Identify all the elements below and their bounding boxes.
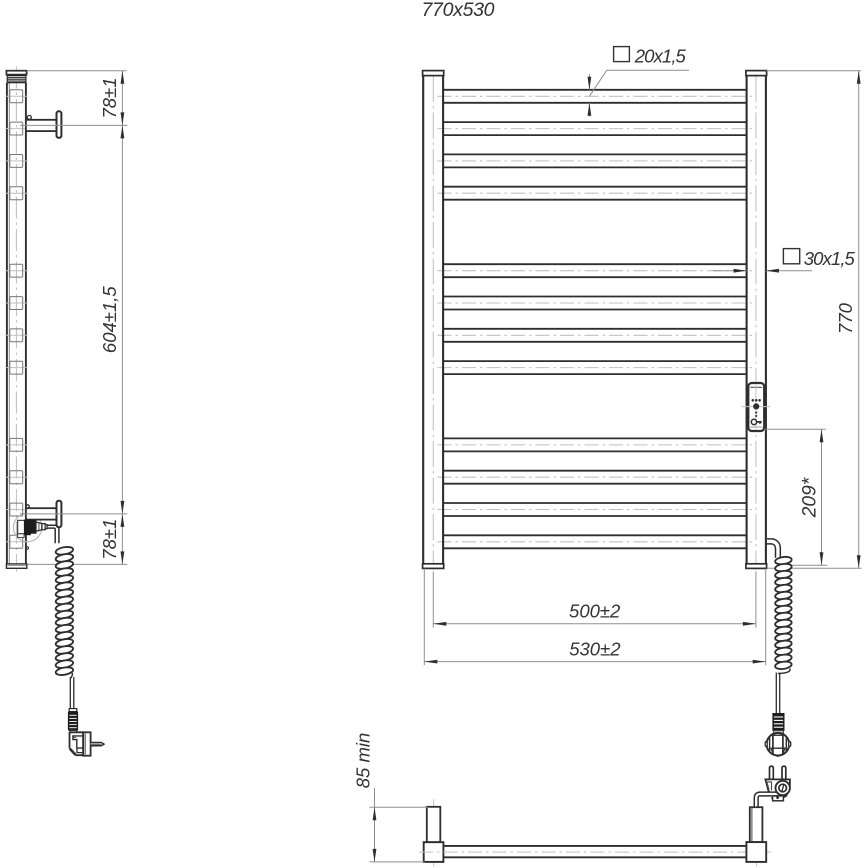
svg-text:604±1,5: 604±1,5	[99, 286, 120, 353]
svg-text:20x1,5: 20x1,5	[634, 45, 687, 66]
svg-text:78±1: 78±1	[99, 77, 120, 118]
svg-text:30x1,5: 30x1,5	[804, 248, 856, 269]
svg-text:209*: 209*	[799, 477, 820, 518]
svg-text:85 min: 85 min	[353, 733, 374, 789]
svg-text:530±2: 530±2	[569, 638, 621, 659]
svg-text:770x530: 770x530	[422, 0, 495, 21]
svg-text:770: 770	[835, 302, 856, 334]
svg-text:78±1: 78±1	[99, 519, 120, 560]
svg-text:500±2: 500±2	[569, 601, 621, 622]
